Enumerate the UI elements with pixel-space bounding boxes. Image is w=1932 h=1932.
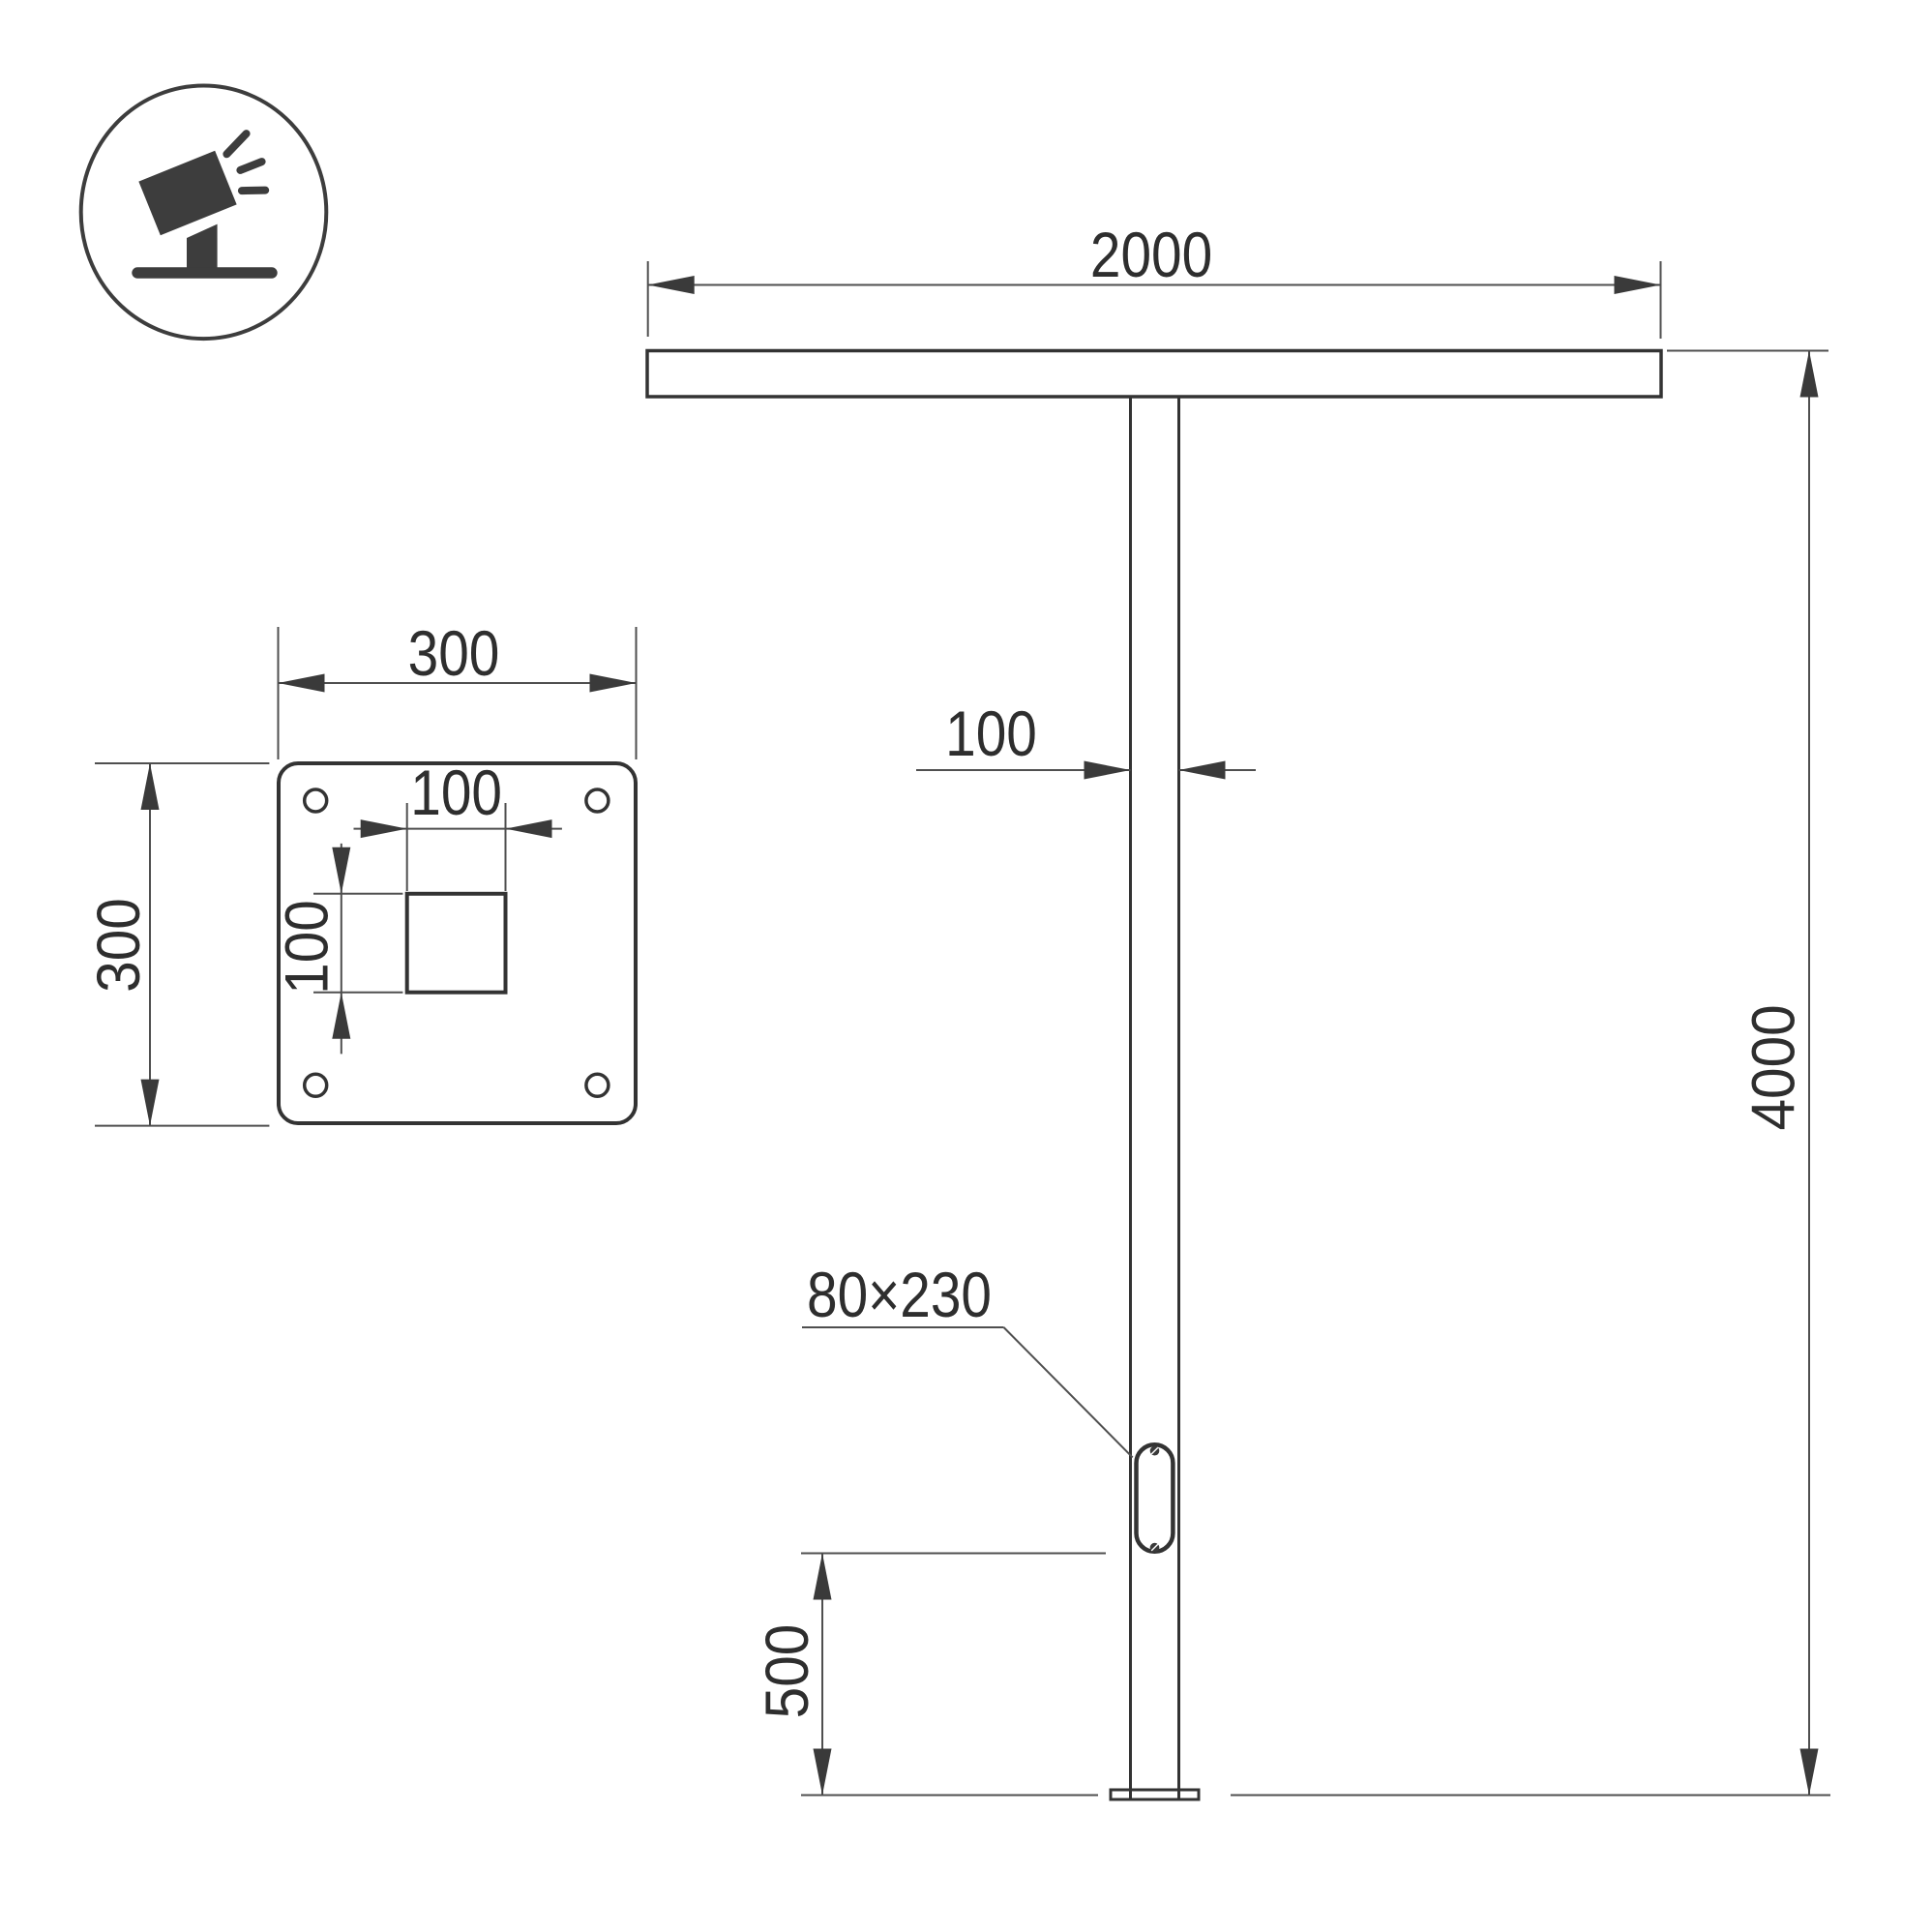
svg-text:100: 100 <box>410 758 502 829</box>
svg-text:300: 300 <box>84 898 152 993</box>
svg-text:2000: 2000 <box>1090 220 1212 291</box>
svg-text:300: 300 <box>408 618 500 690</box>
svg-text:80×230: 80×230 <box>807 1260 992 1331</box>
svg-text:100: 100 <box>273 900 341 995</box>
svg-text:100: 100 <box>945 698 1037 770</box>
svg-text:4000: 4000 <box>1739 1004 1807 1130</box>
svg-text:500: 500 <box>753 1624 820 1719</box>
